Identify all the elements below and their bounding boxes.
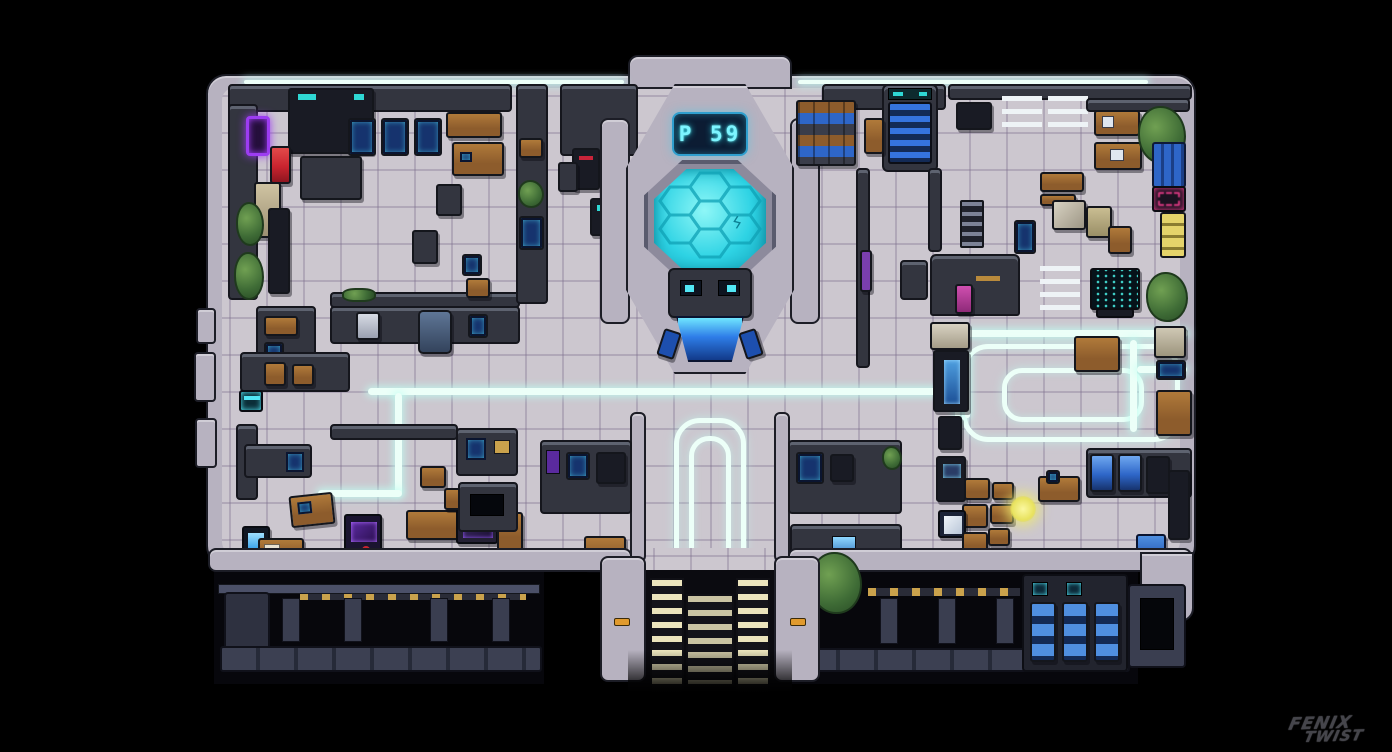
south-wall-left <box>208 548 632 572</box>
stool <box>420 466 446 488</box>
gold-crate <box>494 440 510 454</box>
basement-column <box>430 598 448 642</box>
tarp-crate <box>1052 200 1086 230</box>
sign-screen-blue <box>944 360 960 404</box>
shelf-small <box>558 162 578 192</box>
kiosk-sign <box>976 276 1000 281</box>
chamber-wing-left <box>600 118 630 324</box>
wooden-desk[interactable] <box>452 142 504 176</box>
door-blue[interactable] <box>418 310 452 354</box>
plant <box>236 202 264 246</box>
paper <box>1102 116 1114 128</box>
pillar-purple <box>860 250 872 292</box>
basement-column <box>996 598 1014 644</box>
chamber-status-display: P 59 <box>672 112 748 156</box>
hedge <box>342 288 376 302</box>
locker-screen-cyan <box>1066 582 1082 596</box>
basement-machine-panel <box>1140 598 1174 650</box>
cabinet-blue[interactable] <box>1090 454 1114 492</box>
hex-pool[interactable]: ϟ <box>654 169 766 273</box>
kiosk <box>930 254 1020 316</box>
exterior-vent-module <box>195 418 217 468</box>
locker-yellow[interactable] <box>1160 212 1186 258</box>
console[interactable] <box>796 452 824 484</box>
terminal-low <box>1156 360 1186 380</box>
wall-office-b <box>240 352 350 392</box>
chair[interactable] <box>412 230 438 264</box>
console-small[interactable] <box>938 416 962 450</box>
storage-shelf-grid[interactable] <box>796 100 856 166</box>
staircase-up-blue[interactable] <box>888 102 932 164</box>
hex-pool-tiles: ϟ <box>654 169 766 273</box>
dark-screen <box>470 494 504 516</box>
exterior-vent-module <box>194 352 216 402</box>
basement-door-panel[interactable] <box>224 592 270 650</box>
counter-device <box>1046 470 1060 484</box>
corridor-pillar-left <box>630 412 646 562</box>
cafe-table[interactable] <box>964 478 990 500</box>
stair-console-light <box>893 92 903 96</box>
plant <box>234 252 264 300</box>
neon-purple-sign <box>246 116 270 156</box>
crate-blue <box>462 254 482 276</box>
machine-tan <box>264 362 286 386</box>
stair-console-light <box>919 92 927 96</box>
hazard-light <box>790 618 806 626</box>
crate-wood <box>1108 226 1132 254</box>
crosswalk-stripes <box>1048 96 1088 134</box>
crate-blue <box>1014 220 1036 254</box>
locker-blue[interactable] <box>1062 602 1088 662</box>
paper <box>1110 149 1124 161</box>
floor-path-elbow <box>395 393 402 495</box>
loop-path-inner <box>1002 368 1144 422</box>
console-light <box>727 285 736 292</box>
artist-signature: FENIX TWIST <box>1285 714 1392 745</box>
tree <box>1146 272 1188 322</box>
console-light <box>685 285 694 292</box>
capsule-screen <box>298 94 316 100</box>
chamber-roof-block <box>628 55 792 89</box>
bench-wood[interactable] <box>1040 172 1084 192</box>
wooden-desk-papers[interactable] <box>1094 142 1142 170</box>
table-wood[interactable] <box>1074 336 1120 372</box>
bench-khaki <box>1154 326 1186 358</box>
wooden-desk[interactable] <box>446 112 502 138</box>
locker-wood <box>864 118 884 154</box>
wall-kiosk-side <box>900 260 928 300</box>
arcade-cabinet[interactable] <box>936 456 966 502</box>
cart-tan <box>930 322 970 350</box>
chamber-console[interactable] <box>668 268 752 318</box>
machine <box>830 454 854 482</box>
plant <box>882 446 902 470</box>
crate-wood <box>519 138 543 158</box>
wall-terminal[interactable] <box>468 314 488 338</box>
basement-column <box>282 598 300 642</box>
room-left-of-corridor <box>540 440 632 514</box>
counter-wood[interactable] <box>1038 476 1080 502</box>
locker-screen-cyan <box>1032 582 1048 596</box>
planter <box>518 180 544 208</box>
cluttered-desk <box>264 316 298 336</box>
bay-screen <box>466 438 486 460</box>
loop-path-stub <box>1130 340 1137 432</box>
cabinet-column <box>1168 470 1190 540</box>
basement-column <box>492 598 510 642</box>
neon-pink-graffiti <box>1152 186 1186 212</box>
basement-machine-frame <box>1128 584 1186 668</box>
terminal-desk[interactable] <box>348 118 376 156</box>
cabinet-blue[interactable] <box>1118 454 1142 492</box>
desk-monitor <box>286 452 304 472</box>
basement-base-slabs <box>220 646 542 672</box>
console-window <box>718 280 740 296</box>
purple-window <box>546 450 560 474</box>
kiosk-door-magenta[interactable] <box>955 284 973 314</box>
wooden-desk-tilted[interactable] <box>288 492 335 528</box>
glow-orb-yellow <box>1010 496 1036 522</box>
exterior-vent-module <box>196 308 216 344</box>
wall-hall-south <box>330 424 458 440</box>
map-paper <box>944 516 962 534</box>
basement-column <box>938 598 956 644</box>
shelf-column <box>268 208 290 294</box>
stair-console <box>888 88 932 100</box>
stair-shadow-fade <box>628 650 792 700</box>
cabinet-dark[interactable] <box>1146 456 1170 494</box>
machine-bay <box>456 428 518 476</box>
appliance-white[interactable] <box>356 312 380 340</box>
stool <box>466 278 490 298</box>
machine-bronze <box>292 364 314 386</box>
cafe-chair[interactable] <box>988 528 1010 546</box>
floor-path-right <box>952 330 1188 337</box>
terminal-desk[interactable] <box>381 118 409 156</box>
office-console-desk[interactable] <box>244 444 312 478</box>
cyan-sign-text <box>244 396 260 400</box>
console-window <box>680 280 702 296</box>
cyan-wall-sign <box>239 390 263 412</box>
signature-line2: TWIST <box>1303 729 1388 745</box>
hazard-light <box>614 618 630 626</box>
vertical-sign-unit <box>933 350 969 412</box>
workbench-wood[interactable] <box>406 510 460 540</box>
status-display-text: P 59 <box>679 122 742 146</box>
locker-blue[interactable] <box>1094 602 1120 662</box>
chair[interactable] <box>436 184 462 216</box>
floor-path-main <box>368 388 958 395</box>
sofa[interactable] <box>300 156 362 200</box>
machine-light-red <box>579 156 593 160</box>
wooden-desk-papers[interactable] <box>1094 110 1140 136</box>
cargo-container-blue <box>1152 142 1186 188</box>
game-screenshot: P 59 ϟ <box>0 0 1392 752</box>
wall-corridor-right <box>928 168 942 252</box>
room-right-of-corridor <box>788 440 902 514</box>
ladder[interactable] <box>960 200 984 248</box>
crosswalk-stripes <box>1040 266 1080 310</box>
cabinet-dark <box>956 102 992 130</box>
machine <box>596 452 626 484</box>
arcade-screen <box>351 522 377 542</box>
basement-column <box>344 598 362 642</box>
vending-machine-red[interactable] <box>270 146 291 184</box>
desk-monitor <box>297 501 312 514</box>
desk-wood-large[interactable] <box>1156 390 1192 436</box>
console[interactable] <box>566 452 590 480</box>
machine-bay-dark <box>458 482 518 532</box>
desk-monitor <box>460 152 472 162</box>
cafe-chair[interactable] <box>992 482 1014 500</box>
basement-column <box>880 598 898 644</box>
basement-light-strip <box>868 588 1020 596</box>
crosswalk-stripes <box>1002 96 1042 134</box>
drawer-unit-blue[interactable] <box>519 216 544 250</box>
led-board[interactable] <box>1090 268 1140 310</box>
led-board-base <box>1096 308 1134 318</box>
terminal-desk[interactable] <box>414 118 442 156</box>
arcade-screen <box>943 464 961 478</box>
locker-blue[interactable] <box>1030 602 1056 662</box>
capsule-screen <box>354 94 364 100</box>
